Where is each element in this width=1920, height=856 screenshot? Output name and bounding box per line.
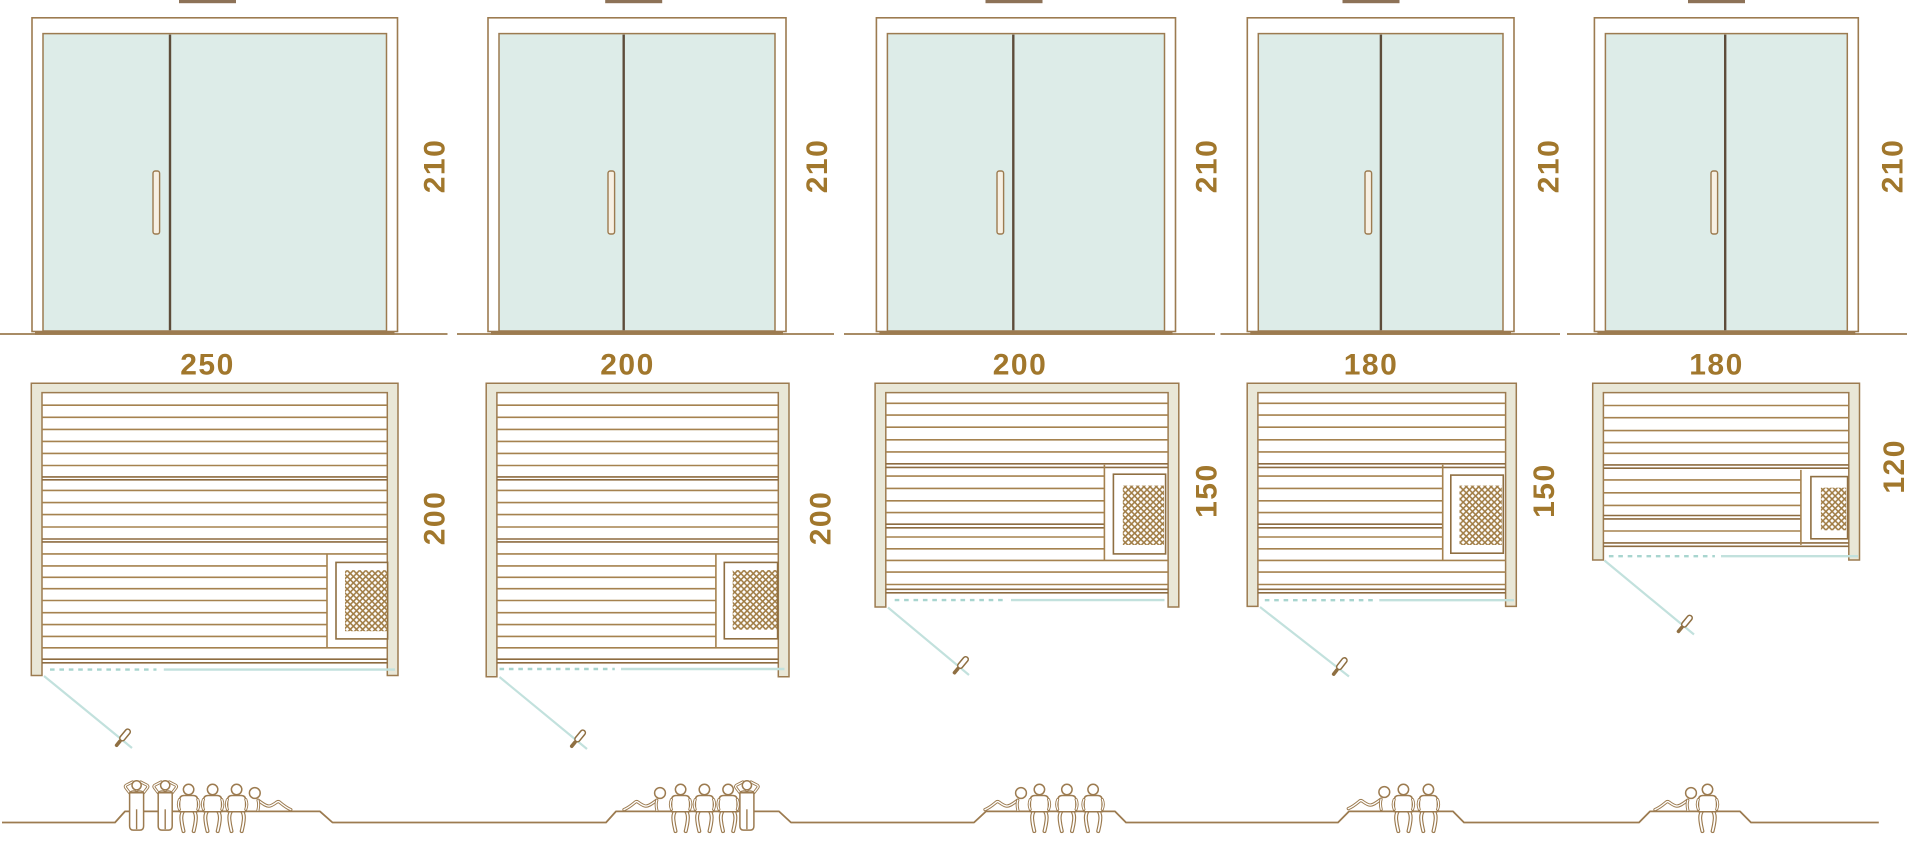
- svg-text:200: 200: [419, 491, 452, 546]
- svg-text:200: 200: [805, 491, 838, 546]
- svg-text:210: 210: [1191, 139, 1224, 194]
- svg-text:150: 150: [1190, 463, 1223, 518]
- svg-text:200: 200: [993, 349, 1048, 382]
- svg-text:210: 210: [801, 139, 834, 194]
- svg-text:210: 210: [419, 139, 452, 194]
- svg-text:210: 210: [1533, 139, 1566, 194]
- svg-text:200: 200: [600, 349, 655, 382]
- svg-text:180: 180: [1344, 349, 1399, 382]
- svg-text:210: 210: [1876, 139, 1909, 194]
- svg-text:150: 150: [1528, 463, 1561, 518]
- svg-text:120: 120: [1878, 439, 1911, 494]
- svg-text:180: 180: [1689, 349, 1744, 382]
- svg-text:250: 250: [180, 349, 235, 382]
